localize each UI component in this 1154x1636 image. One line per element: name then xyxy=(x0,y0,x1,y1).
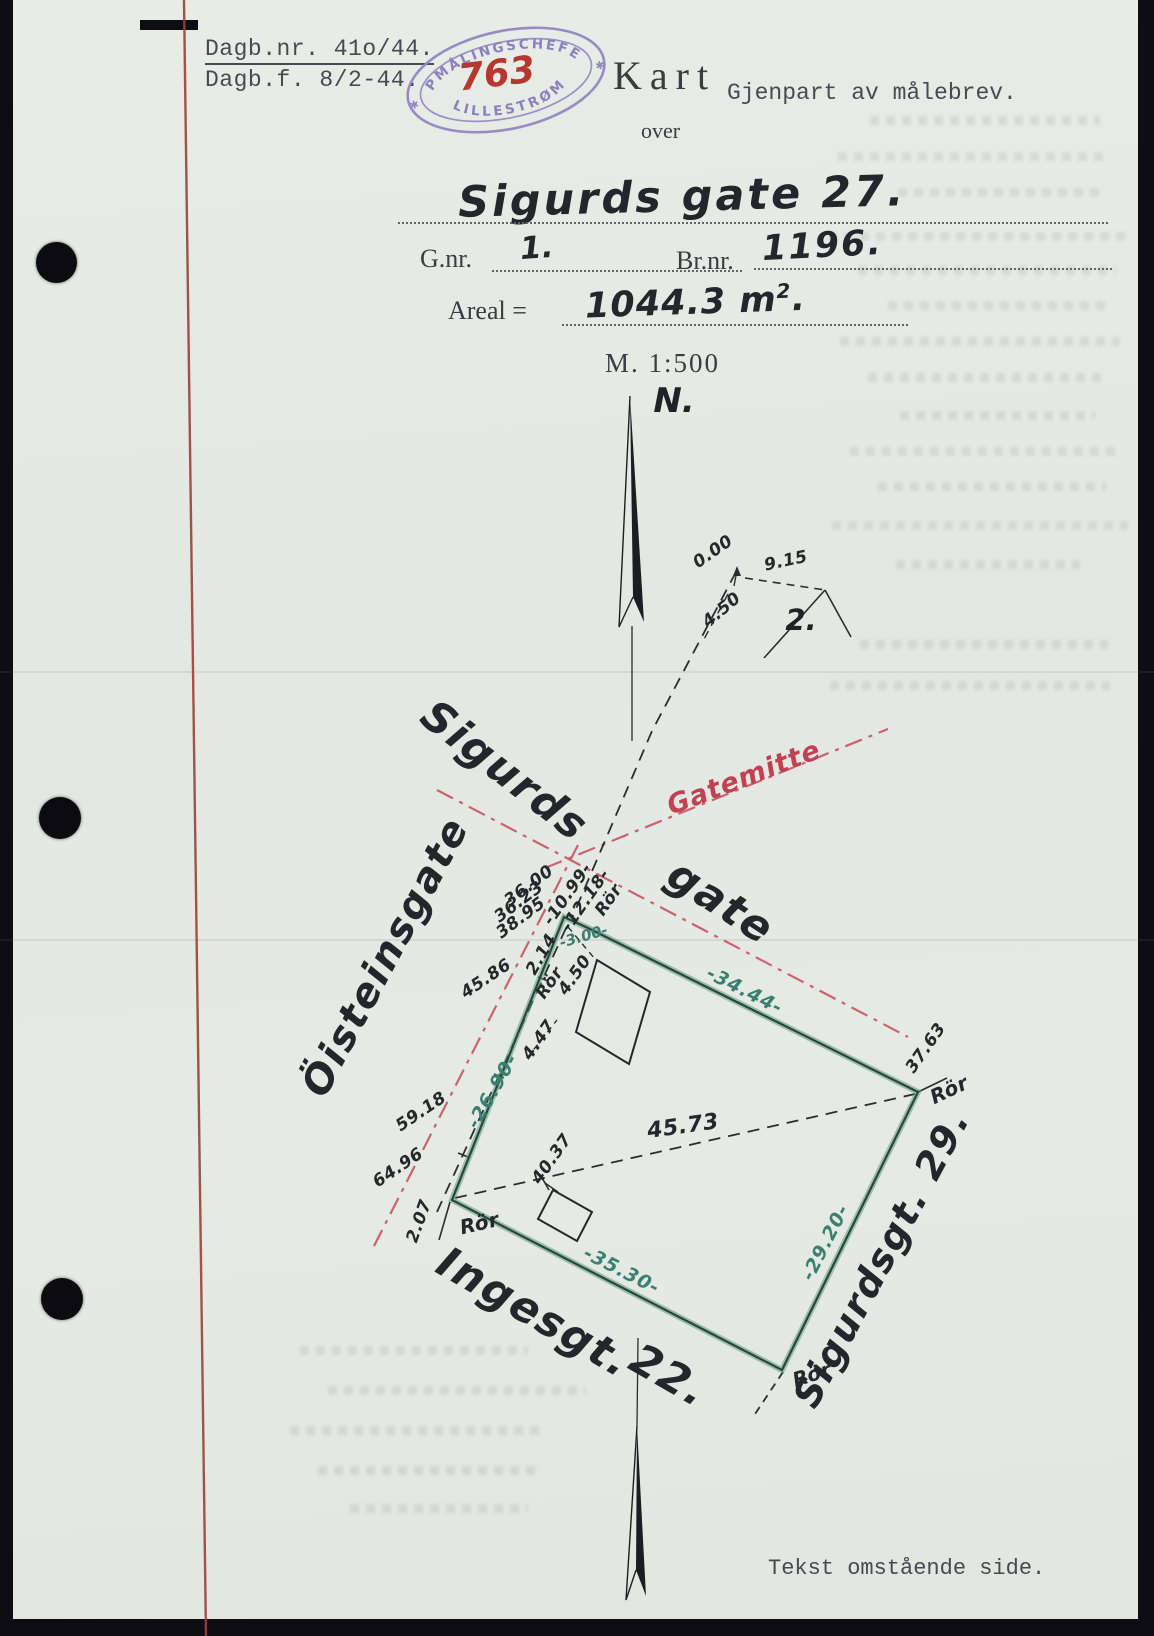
diagonal-measure-line xyxy=(455,1094,915,1198)
parcel2-dashed-edge xyxy=(745,578,825,590)
street-centerlines xyxy=(372,729,908,1250)
north-arrow xyxy=(619,396,644,741)
parcel2-d-zero: 0.00 xyxy=(689,531,736,573)
corner-tick-west xyxy=(439,1202,450,1240)
parcel2-d-915: 9.15 xyxy=(762,547,809,576)
measure-207: 2.07 xyxy=(402,1197,436,1245)
building-outbuilding xyxy=(538,1190,592,1241)
gatemitte-label: Gatemitte xyxy=(663,735,825,822)
south-arrow-outline xyxy=(626,1426,637,1600)
north-label: N. xyxy=(653,381,694,421)
marker-ror-east: Rör xyxy=(926,1070,973,1109)
boundary-side-nw: -26.90- xyxy=(463,1050,523,1133)
measure-4573: 45.73 xyxy=(645,1109,721,1144)
measure-6496: 64.96 xyxy=(369,1144,427,1192)
measure-4037: 40.37 xyxy=(527,1130,576,1188)
marker-ror-west: Rör xyxy=(457,1207,502,1239)
footer-note: Tekst omstående side. xyxy=(768,1556,1045,1581)
parcel2-edge-right xyxy=(825,590,851,637)
street-label-gate: gate xyxy=(658,849,784,955)
measure-3763: 37.63 xyxy=(902,1019,951,1077)
scanned-survey-page: Dagb.nr. 41o/44. Dagb.f. 8/2-44. OPMÅLIN… xyxy=(0,0,1154,1636)
building-main xyxy=(576,960,650,1064)
north-arrow-blade xyxy=(630,396,644,622)
survey-map: N. Sigurds gate Gatemitte Öisteinsgate I… xyxy=(0,0,1154,1636)
street-label-oisteinsgate: Öisteinsgate xyxy=(291,808,479,1104)
south-arrow-blade xyxy=(636,1426,646,1596)
parcel2-number: 2. xyxy=(785,603,816,637)
parcel2-d-450: 4.50 xyxy=(698,588,745,632)
measure-4586: 45.86 xyxy=(456,955,515,1004)
parcel2-arrowhead xyxy=(733,566,741,576)
corner-extension-south xyxy=(755,1372,783,1414)
